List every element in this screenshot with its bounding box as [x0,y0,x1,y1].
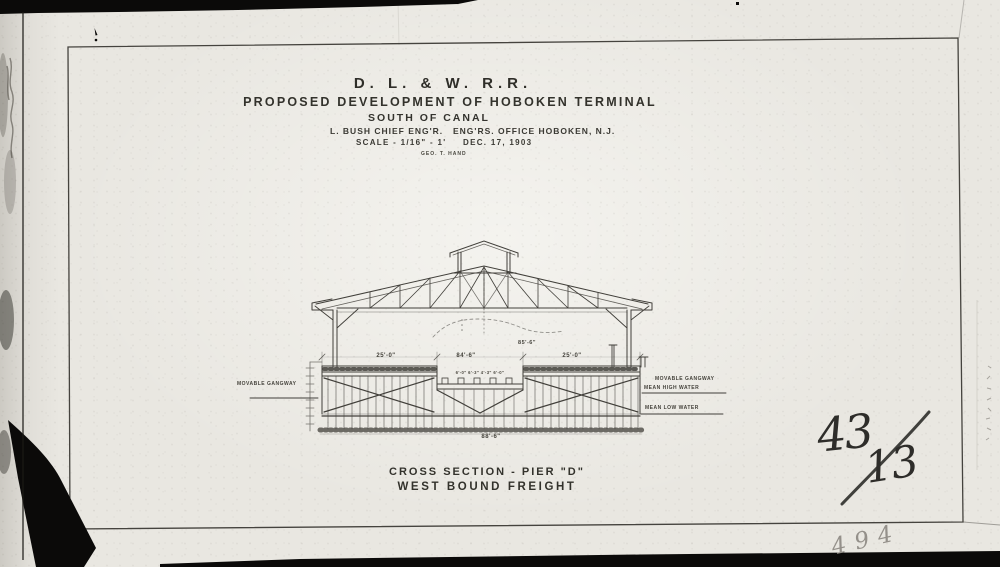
caption-line2: WEST BOUND FREIGHT [397,482,576,494]
ink-mark [95,28,98,36]
scanned-drawing-sheet: D. L. & W. R.R. PROPOSED DEVELOPMENT OF … [0,0,1000,567]
label-right-gangway: MOVABLE GANGWAY [655,377,714,382]
scale-note: SCALE - 1/16" - 1' [356,139,446,147]
ink-dot [95,39,98,42]
elevation-scale [306,362,322,431]
film-corner-wedge [8,420,96,567]
film-edge-marks [977,300,991,470]
dim-left-span: 25'-0" [376,353,395,359]
drawing-subtitle: SOUTH OF CANAL [368,113,490,124]
office-name: ENG'RS. OFFICE HOBOKEN, N.J. [453,127,615,136]
drawing-title: PROPOSED DEVELOPMENT OF HOBOKEN TERMINAL [243,96,657,109]
engineer-name: L. BUSH CHIEF ENG'R. [330,127,443,136]
dashed-profile [433,273,564,337]
date-note: DEC. 17, 1903 [463,139,532,147]
label-mean-low-water: MEAN LOW WATER [645,406,699,411]
caption-line1: CROSS SECTION - PIER "D" [389,467,585,478]
film-top-bar [0,0,478,14]
label-mean-high-water: MEAN HIGH WATER [644,386,699,391]
margin-handwriting-marks [7,58,13,158]
signature: GEO. T. HAND [421,152,467,157]
dim-right-span: 25'-0" [562,353,581,359]
film-speck [736,2,739,5]
railroad-title: D. L. & W. R.R. [354,76,532,91]
dim-center-span: 84'-6" [456,353,475,359]
dim-upper-span: 85'-6" [518,341,536,347]
dim-track-spacings: 6'-0" 6'-3" 4'-3" 6'-0" [456,371,505,375]
label-left-gangway: MOVABLE GANGWAY [237,382,296,387]
film-bottom-band [160,551,1000,567]
handwritten-drawing-number-denominator: 13 [861,436,921,494]
cross-section-drawing [250,241,929,504]
gangway-mast [609,345,648,367]
dim-overall-bottom: 88'-6" [481,434,500,440]
roof-and-truss [312,266,652,367]
